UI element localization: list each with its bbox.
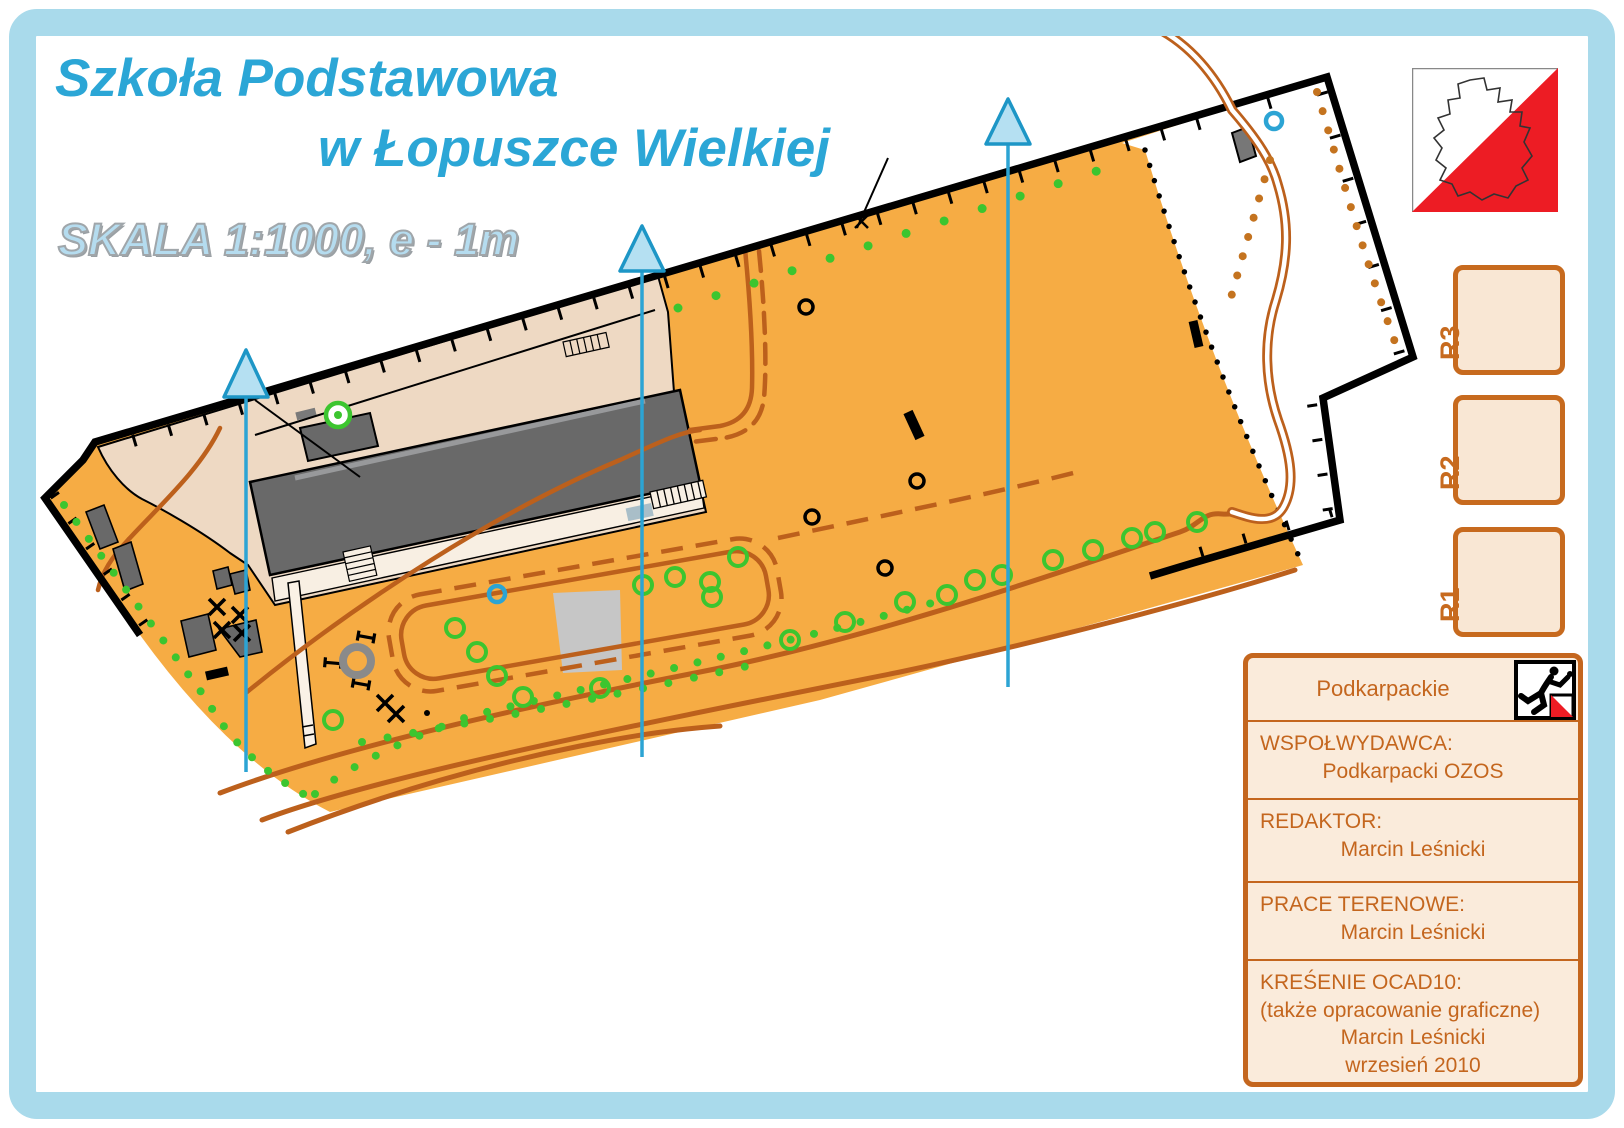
credits-row-publisher: WSPOŁWYDAWCA: Podkarpacki OZOS: [1248, 722, 1578, 800]
credits-box: Podkarpackie WSPOŁWYDAWCA: Podkarpacki O…: [1243, 653, 1583, 1087]
poster-page: { "title": { "line1": "Szkoła Podstawowa…: [0, 0, 1624, 1128]
credits-label: PRACE TERENOWE:: [1260, 891, 1566, 919]
credits-label: WSPOŁWYDAWCA:: [1260, 730, 1566, 758]
refuge-box-r2: R2: [1453, 395, 1565, 505]
control-flag-icon: [1551, 695, 1573, 717]
credits-value: Podkarpacki OZOS: [1260, 758, 1566, 786]
credits-line: Marcin Leśnicki: [1260, 1024, 1566, 1052]
map-title-line2: w Łopuszce Wielkiej: [318, 118, 830, 179]
credits-line: wrzesień 2010: [1260, 1052, 1566, 1080]
credits-row-editor: REDAKTOR: Marcin Leśnicki: [1248, 800, 1578, 883]
refuge-box-r1-label: R1: [1435, 587, 1466, 622]
map-scale-text: SKALA 1:1000, e - 1m: [58, 214, 519, 266]
orienteering-runner-icon: [1514, 660, 1576, 720]
pozos-logo: [1412, 68, 1558, 212]
distinctive-tree: [326, 403, 350, 427]
credits-header: Podkarpackie: [1248, 658, 1578, 722]
refuge-box-r2-label: R2: [1435, 455, 1466, 490]
credits-value: Marcin Leśnicki: [1260, 836, 1566, 864]
credits-row-drawing: KREŚENIE OCAD10: (także opracowanie graf…: [1248, 961, 1578, 1086]
credits-label: KREŚENIE OCAD10:: [1260, 969, 1566, 997]
stairs-west: [343, 546, 377, 581]
credits-label: REDAKTOR:: [1260, 808, 1566, 836]
credits-row-fieldwork: PRACE TERENOWE: Marcin Leśnicki: [1248, 883, 1578, 961]
map-title-line1: Szkoła Podstawowa: [55, 48, 559, 109]
refuge-box-r1: R1: [1453, 527, 1565, 637]
refuge-box-r3: R3: [1453, 265, 1565, 375]
refuge-box-r3-label: R3: [1435, 325, 1466, 360]
credits-value: Marcin Leśnicki: [1260, 919, 1566, 947]
credits-line: (także opracowanie graficzne): [1260, 997, 1566, 1025]
